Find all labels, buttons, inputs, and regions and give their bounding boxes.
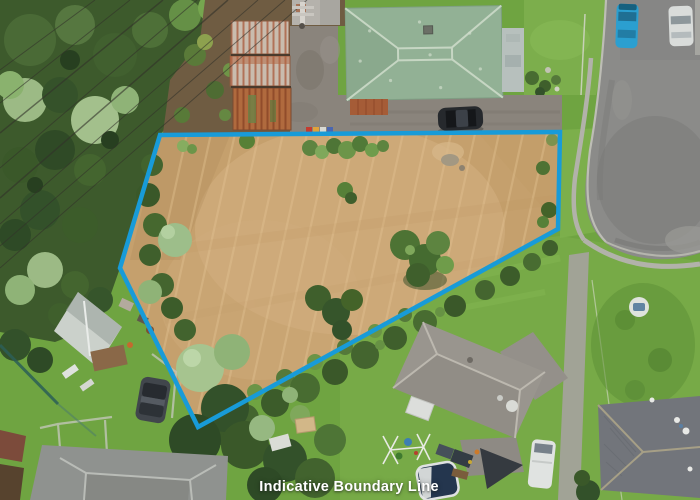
roof-vent	[506, 400, 518, 412]
rusty-shed-roof-1	[231, 21, 289, 54]
parked-blue-car	[615, 4, 639, 49]
indicative-boundary-caption: Indicative Boundary Line	[259, 479, 439, 495]
chimney	[424, 26, 433, 34]
sandpit	[295, 417, 316, 434]
rusty-shed-roof-3	[233, 88, 291, 130]
parked-white-car	[668, 6, 693, 47]
white-van	[527, 439, 556, 489]
green-roof-house	[345, 6, 503, 101]
aerial-photo-view: Indicative Boundary Line	[0, 0, 700, 500]
aerial-photo-canvas	[0, 0, 700, 500]
overgrown-lawn-patch	[591, 283, 695, 407]
